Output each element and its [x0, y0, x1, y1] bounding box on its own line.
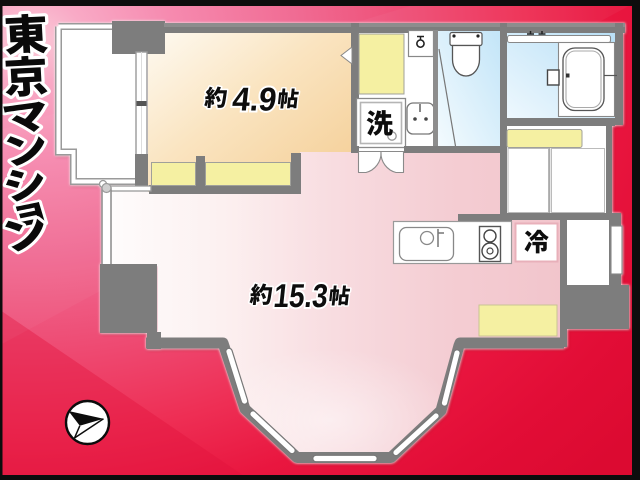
- svg-text:15.3: 15.3: [272, 278, 330, 315]
- svg-text:4.9: 4.9: [231, 82, 279, 119]
